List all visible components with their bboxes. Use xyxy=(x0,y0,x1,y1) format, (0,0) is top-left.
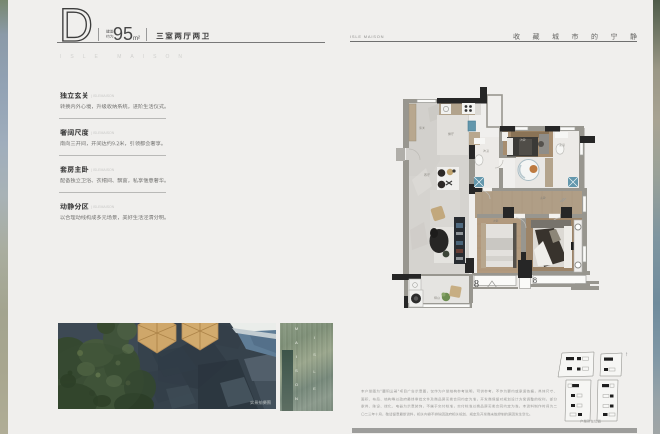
svg-text:8: 8 xyxy=(533,276,537,285)
svg-text:8: 8 xyxy=(474,279,479,290)
